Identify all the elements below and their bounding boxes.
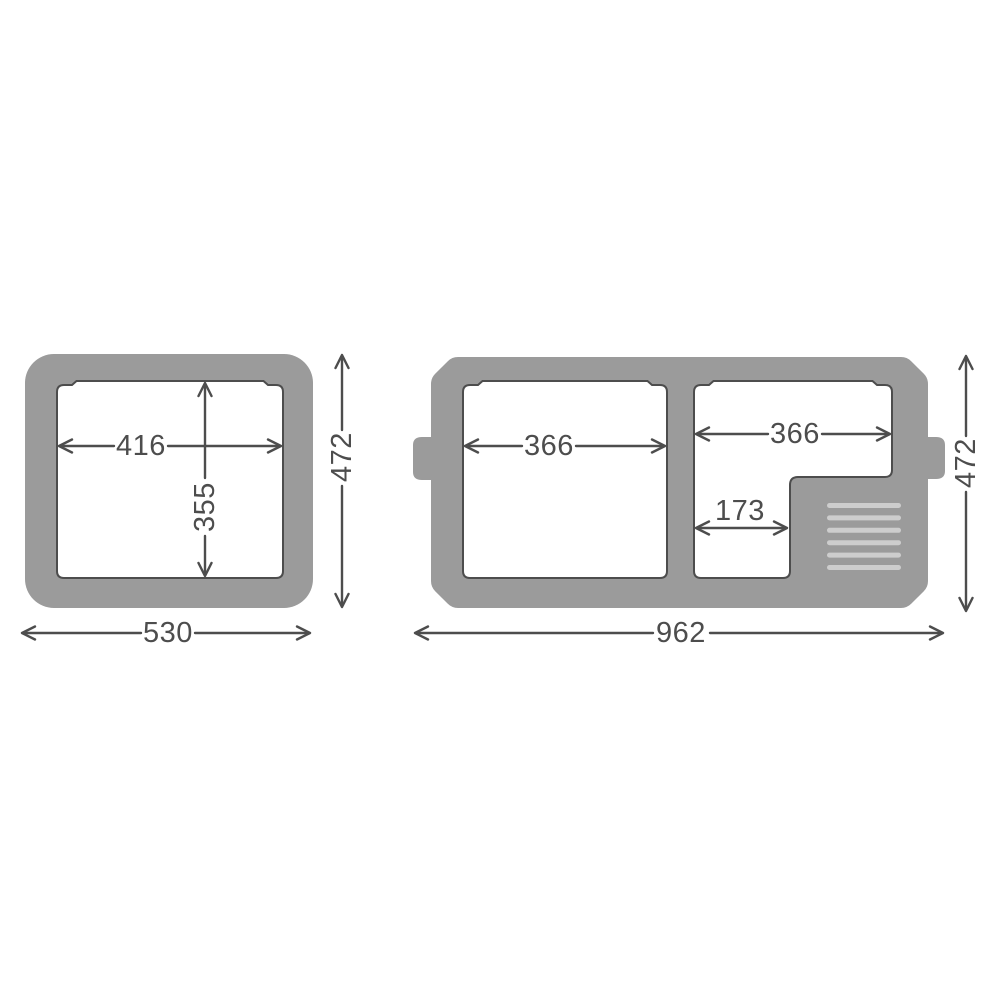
small-cooler-cavity — [57, 381, 283, 578]
dim-label-overall-width-large: 962 — [656, 617, 706, 649]
dimension-overall-width-large: 962 — [415, 617, 943, 649]
diagram-canvas: 416 355 472 — [0, 0, 1000, 1000]
dim-label-overall-depth-small: 472 — [326, 432, 358, 482]
grille-bar — [827, 515, 901, 520]
dimension-overall-width-small: 530 — [22, 617, 310, 649]
dim-label-overall-width-small: 530 — [143, 617, 193, 649]
large-cooler: 366 366 173 — [413, 356, 982, 649]
grille-bar — [827, 565, 901, 570]
large-cooler-left-cavity — [463, 381, 667, 578]
dimension-overall-depth-small: 472 — [326, 355, 358, 607]
dim-label-right-compartment-width: 366 — [770, 418, 820, 450]
grille-bar — [827, 553, 901, 558]
dim-label-compressor-step-width: 173 — [715, 495, 765, 527]
small-cooler: 416 355 472 — [22, 354, 358, 649]
dim-label-inner-width: 416 — [116, 430, 166, 462]
dimension-overall-depth-large: 472 — [950, 356, 982, 611]
cooler-dimensions-diagram: 416 355 472 — [0, 0, 1000, 1000]
dim-label-left-compartment-width: 366 — [524, 430, 574, 462]
grille-bar — [827, 528, 901, 533]
dim-label-overall-depth-large: 472 — [950, 438, 982, 488]
grille-bar — [827, 540, 901, 545]
grille-bar — [827, 503, 901, 508]
dim-label-inner-depth: 355 — [189, 482, 221, 532]
